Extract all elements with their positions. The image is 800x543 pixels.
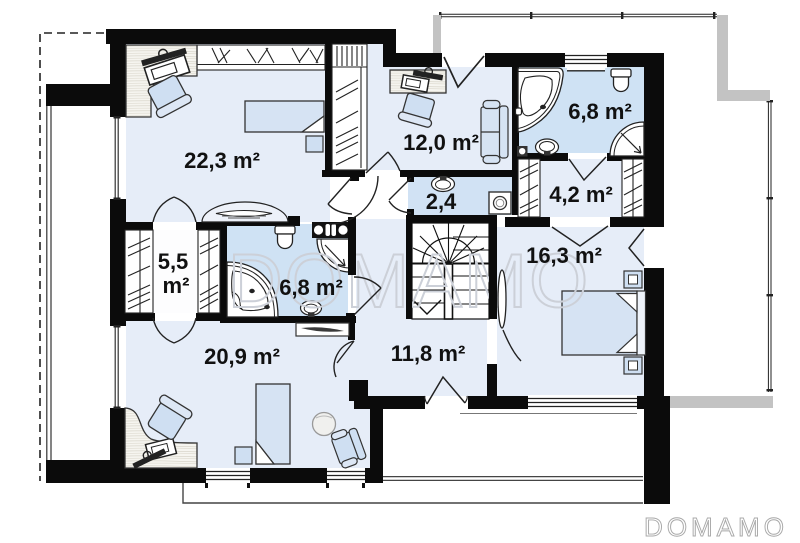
svg-text:20,9 m²: 20,9 m² (204, 344, 280, 369)
svg-text:11,8 m²: 11,8 m² (391, 341, 466, 366)
svg-text:22,3 m²: 22,3 m² (184, 148, 260, 173)
svg-text:12,0 m²: 12,0 m² (403, 130, 479, 155)
svg-text:6,8 m²: 6,8 m² (279, 275, 343, 300)
svg-text:4,2 m²: 4,2 m² (549, 182, 613, 207)
svg-text:2,4: 2,4 (426, 189, 457, 214)
svg-text:16,3 m²: 16,3 m² (526, 243, 602, 268)
svg-text:DOMAMO: DOMAMO (644, 512, 788, 542)
svg-text:6,8 m²: 6,8 m² (568, 99, 632, 124)
svg-text:5,5: 5,5 (158, 249, 189, 274)
svg-text:m²: m² (163, 273, 190, 298)
